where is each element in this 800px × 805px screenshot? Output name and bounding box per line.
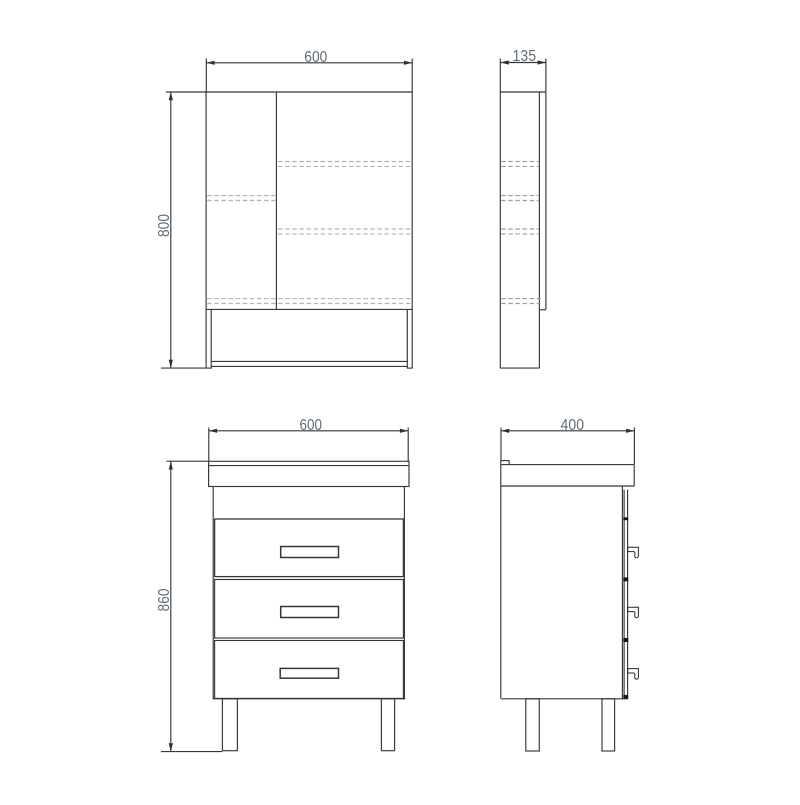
svg-text:800: 800 bbox=[156, 214, 173, 237]
svg-text:400: 400 bbox=[561, 417, 585, 434]
svg-text:600: 600 bbox=[300, 417, 323, 434]
svg-text:600: 600 bbox=[304, 49, 327, 66]
svg-text:860: 860 bbox=[156, 588, 173, 611]
svg-text:135: 135 bbox=[513, 48, 537, 65]
